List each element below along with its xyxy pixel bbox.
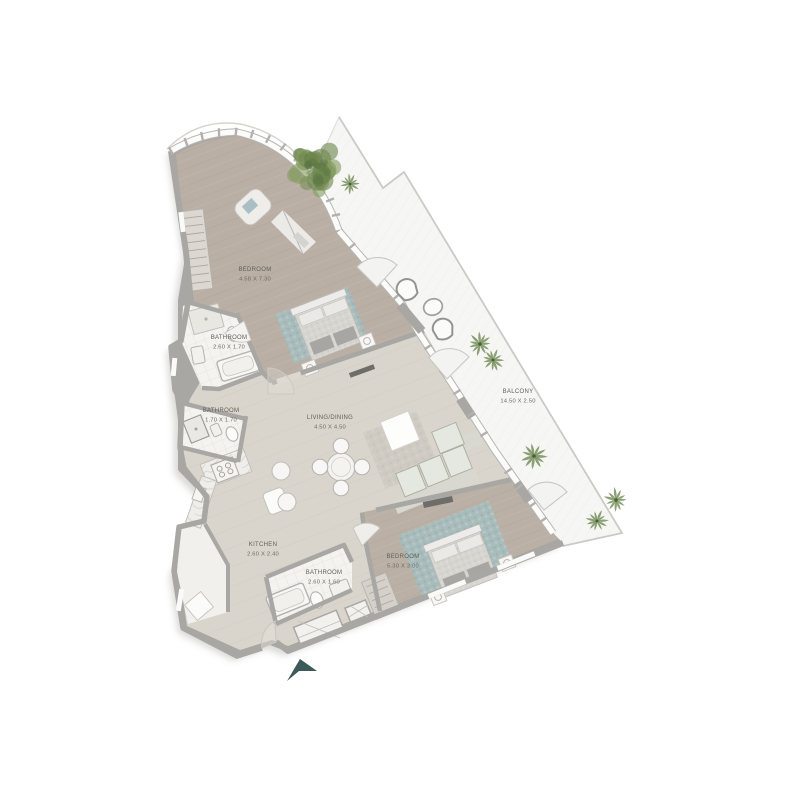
svg-text:BATHROOM: BATHROOM (306, 570, 343, 576)
svg-text:5.30 X 3.00: 5.30 X 3.00 (387, 564, 419, 570)
svg-text:KITCHEN: KITCHEN (249, 542, 277, 548)
svg-text:BEDROOM: BEDROOM (238, 267, 271, 273)
svg-text:LIVING/DINING: LIVING/DINING (307, 415, 353, 421)
svg-text:4.50 X 4.50: 4.50 X 4.50 (314, 425, 346, 431)
svg-text:BALCONY: BALCONY (503, 389, 534, 395)
svg-text:2.60 X 2.40: 2.60 X 2.40 (247, 552, 279, 558)
svg-text:14.50 X 2.50: 14.50 X 2.50 (500, 399, 535, 405)
svg-text:1.70 X 1.70: 1.70 X 1.70 (205, 418, 237, 424)
svg-text:BEDROOM: BEDROOM (386, 554, 419, 560)
svg-text:BATHROOM: BATHROOM (211, 335, 248, 341)
svg-text:2.60 X 1.70: 2.60 X 1.70 (213, 345, 245, 351)
svg-text:2.60 X 1.60: 2.60 X 1.60 (308, 580, 340, 586)
svg-text:4.58 X 7.30: 4.58 X 7.30 (239, 277, 271, 283)
svg-text:BATHROOM: BATHROOM (203, 408, 240, 414)
